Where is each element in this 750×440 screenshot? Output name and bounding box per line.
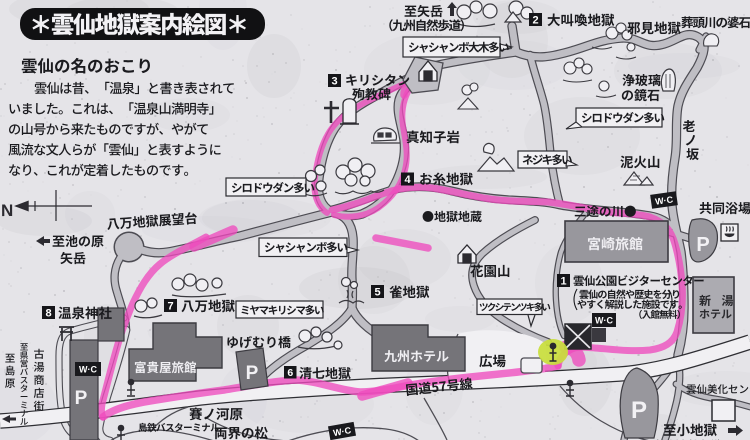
svg-text:2: 2 xyxy=(532,14,538,26)
svg-text:8: 8 xyxy=(45,307,51,319)
svg-text:7: 7 xyxy=(167,300,173,312)
svg-text:N: N xyxy=(1,201,13,220)
svg-text:6: 6 xyxy=(287,367,293,379)
svg-text:P: P xyxy=(631,397,647,424)
svg-text:P: P xyxy=(696,234,709,256)
svg-text:W·C: W·C xyxy=(79,365,97,375)
svg-text:P: P xyxy=(246,363,259,384)
svg-text:4: 4 xyxy=(404,174,411,186)
svg-text:1: 1 xyxy=(560,275,566,287)
svg-text:W·C: W·C xyxy=(595,316,613,326)
svg-text:5: 5 xyxy=(374,286,380,298)
svg-text:3: 3 xyxy=(331,75,337,87)
svg-text:P: P xyxy=(75,388,88,409)
